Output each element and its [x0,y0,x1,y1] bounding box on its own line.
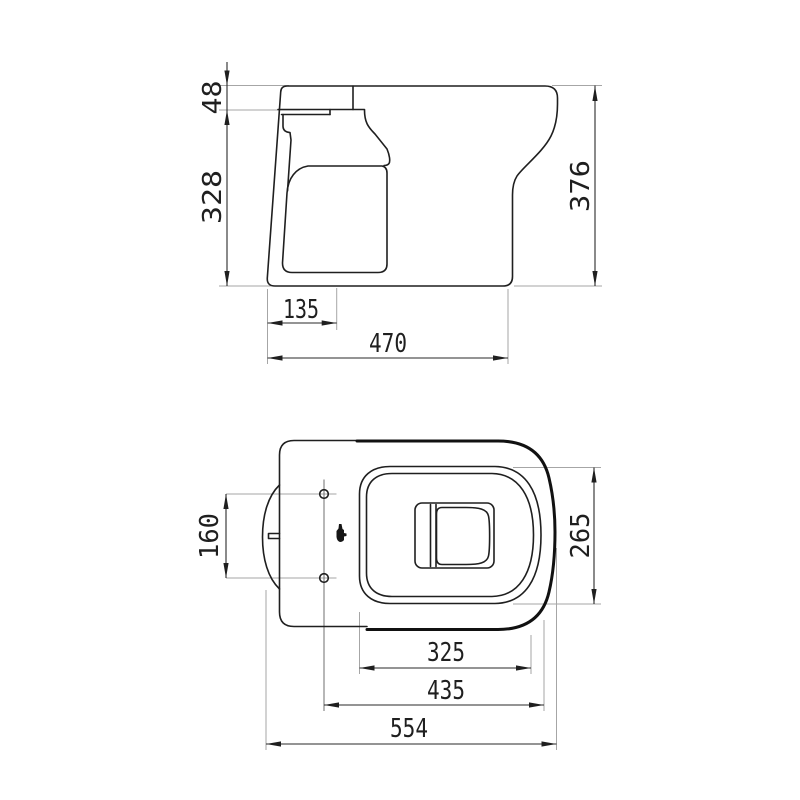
dim-arrow [591,589,596,604]
side-body-outline [267,86,557,286]
dim-label-265: 265 [566,513,596,559]
centre-panel [415,503,494,568]
dim-arrow [224,271,229,286]
dim-arrow [516,665,531,670]
pipe-arc-path [263,485,280,589]
dim-arrow [542,741,557,746]
top-view-dimensions: 160 265 325 435 554 [195,468,597,747]
plateau-inner-edge [367,474,534,597]
side-seat-detail [278,86,390,191]
technical-drawing-canvas: 48 328 376 135 470 [0,0,800,800]
drawing-page: 48 328 376 135 470 [0,0,800,800]
top-cover-outline [357,441,555,630]
dim-arrow [223,494,228,509]
dim-arrow [592,271,597,286]
seat-plateau [360,467,542,604]
plateau-outer-edge [360,467,542,604]
water-inlet-icon [337,524,347,542]
side-trapway-outline [283,166,388,273]
seat-front-profile [365,110,390,166]
dim-label-554: 554 [390,714,428,744]
dim-arrow [360,665,375,670]
dim-label-376: 376 [566,160,596,212]
dim-arrow [268,320,283,325]
dim-label-470: 470 [369,329,407,359]
dim-label-135: 135 [283,295,319,325]
dim-arrow [529,702,544,707]
side-view: 48 328 376 135 470 [198,62,602,364]
top-body-outline [280,441,368,627]
top-view: 160 265 325 435 554 [195,441,601,751]
dim-arrow [591,468,596,483]
dim-label-160: 160 [195,513,225,559]
dim-arrow [592,86,597,101]
panel-inner-shape [437,508,490,565]
dim-label-435: 435 [427,676,465,706]
dim-arrow [268,355,283,360]
dim-arrow [266,741,281,746]
top-view-extension-lines [226,468,601,751]
dim-label-325: 325 [427,638,465,668]
pipe-notch [269,534,280,539]
dim-label-48: 48 [198,81,228,115]
dim-arrow [322,320,337,325]
dim-arrow [493,355,508,360]
dim-arrow [223,563,228,578]
dim-arrow [324,702,339,707]
side-view-dimensions: 48 328 376 135 470 [198,62,598,361]
panel-outer-rect [415,503,494,568]
dim-label-328: 328 [198,170,228,224]
soil-pipe-arc [263,485,280,589]
